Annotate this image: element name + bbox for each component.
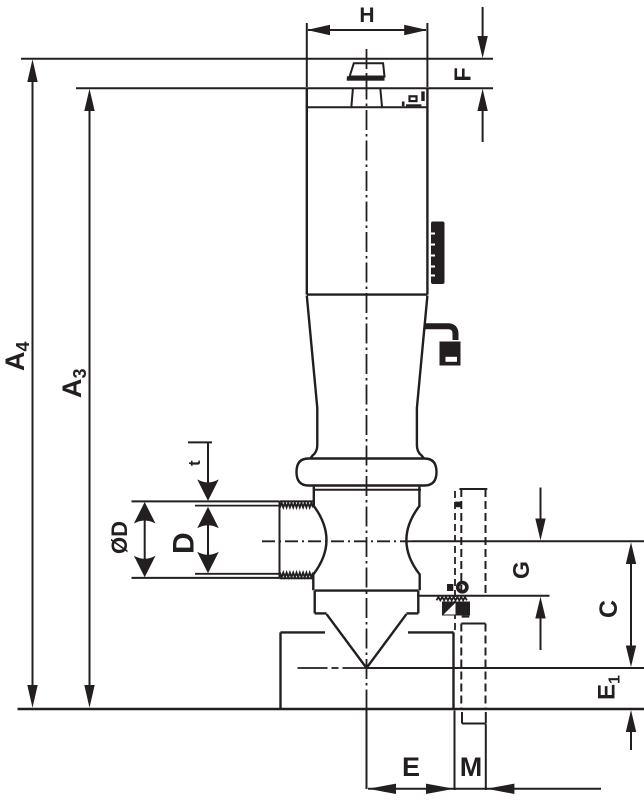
svg-text:M: M <box>460 752 483 782</box>
svg-text:t: t <box>185 460 204 466</box>
svg-text:ØD: ØD <box>107 521 132 554</box>
svg-text:C: C <box>595 600 623 618</box>
svg-text:F: F <box>450 67 476 81</box>
svg-text:G: G <box>508 561 534 579</box>
svg-text:H: H <box>359 4 374 27</box>
svg-text:E: E <box>402 752 420 782</box>
svg-text:D: D <box>168 532 201 554</box>
